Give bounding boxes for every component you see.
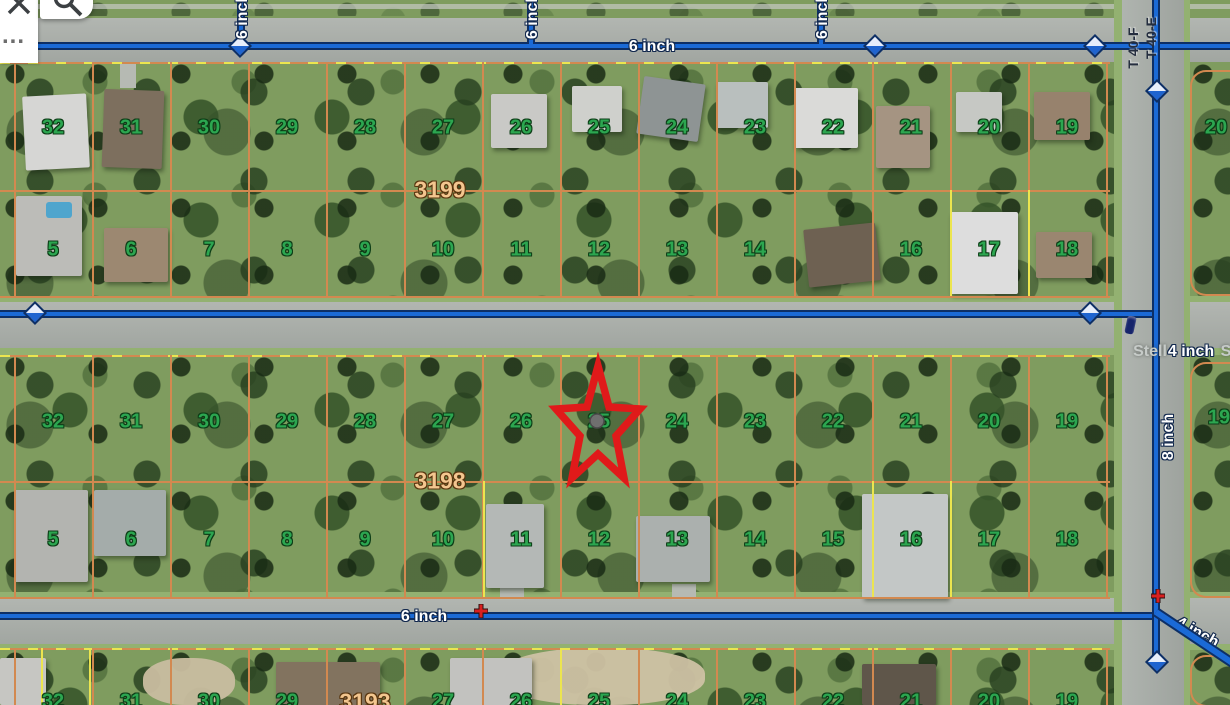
lot-number: 29 [276, 117, 298, 140]
parcel-line [170, 648, 172, 705]
lot-number: 32 [42, 691, 64, 705]
parcel-line [248, 648, 250, 705]
lot-number: 7 [203, 239, 214, 262]
toolbar-fragment: ... [0, 0, 38, 63]
grass-verge [1114, 0, 1122, 705]
lot-number: 8 [281, 239, 292, 262]
lot-number: 27 [432, 691, 454, 705]
parcel-outline [1190, 362, 1230, 598]
lot-number: 24 [666, 691, 688, 705]
parcel-line [794, 648, 796, 705]
parcel-line [950, 648, 952, 705]
lot-number: 11 [510, 239, 531, 262]
parcel-line [0, 62, 1110, 64]
lot-number: 19 [1056, 117, 1078, 140]
pipe-size-label: 6 inch [401, 608, 447, 626]
swimming-pool [46, 202, 72, 218]
parcel-line [872, 481, 874, 597]
road-top [0, 18, 1230, 62]
lot-number: 17 [978, 239, 1000, 262]
parcel-line [326, 62, 328, 296]
pipe-size-label: 6 inch [234, 0, 252, 39]
lot-number: 18 [1056, 239, 1078, 262]
lot-number: 30 [198, 691, 220, 705]
lot-number: 16 [900, 529, 922, 552]
parcel-line [794, 62, 796, 296]
lot-number: 21 [900, 411, 922, 434]
lot-number: 9 [359, 239, 370, 262]
lot-number: 13 [666, 239, 688, 262]
lot-number: 16 [900, 239, 922, 262]
lot-number: 30 [198, 117, 220, 140]
parcel-line [1028, 190, 1030, 296]
lot-number: 10 [432, 239, 454, 262]
lot-number: 29 [276, 691, 298, 705]
cleared-lot [143, 658, 235, 705]
pipe-size-label: 4 inch [1168, 343, 1214, 361]
parcel-line [326, 355, 328, 597]
plat-reference-label: T 40-E [1143, 17, 1159, 59]
lot-number: 22 [822, 411, 844, 434]
sidewalk [0, 4, 1230, 9]
parcel-line [170, 62, 172, 296]
parcel-line [950, 481, 952, 597]
lot-number: 24 [666, 117, 688, 140]
lot-number: 24 [666, 411, 688, 434]
lot-number: 23 [744, 691, 766, 705]
lot-number: 6 [125, 529, 136, 552]
grass-verge [0, 348, 1230, 355]
street-name-fragment: Stell [1133, 343, 1167, 361]
block-number: 3199 [414, 177, 465, 204]
parcel-line [92, 355, 94, 597]
parcel-outline [1190, 70, 1230, 296]
parcel-line [404, 62, 406, 296]
parcel-line [404, 355, 406, 597]
parcel-line [1106, 62, 1108, 296]
parcel-line [560, 62, 562, 296]
lot-number: 10 [432, 529, 454, 552]
pipe-size-label: 6 inch [814, 0, 832, 39]
lot-number: 26 [510, 691, 532, 705]
street-name-fragment: S [1221, 343, 1230, 361]
search-button[interactable] [40, 0, 93, 19]
parcel-line [0, 481, 1110, 483]
map-canvas[interactable]: 3231302928272625242322212019567891011121… [0, 0, 1230, 705]
parcel-line [872, 62, 874, 296]
lot-number: 15 [822, 529, 844, 552]
parcel-line [0, 296, 1110, 298]
parcel-line [92, 62, 94, 296]
water-main-top [0, 42, 1230, 50]
parcel-line [482, 62, 484, 296]
lot-number: 13 [666, 529, 688, 552]
lot-number: 26 [510, 411, 532, 434]
lot-number: 25 [588, 117, 610, 140]
parcel-line [404, 648, 406, 705]
parcel-line [560, 648, 562, 705]
hydrant-marker [474, 604, 488, 618]
plat-reference-label: T 40-F [1125, 27, 1141, 68]
lot-number: 25 [588, 691, 610, 705]
search-icon [40, 0, 93, 19]
lot-number: 29 [276, 411, 298, 434]
water-main-bottom [0, 612, 1158, 620]
parcel-line [1028, 648, 1030, 705]
hydrant-marker [1151, 589, 1165, 603]
parcel-line [14, 648, 16, 705]
house [803, 222, 881, 287]
lot-number: 32 [42, 411, 64, 434]
lot-number: 14 [744, 239, 766, 262]
lot-number: 23 [744, 117, 766, 140]
lot-number: 21 [900, 117, 922, 140]
parcel-line [248, 355, 250, 597]
parcel-line [326, 648, 328, 705]
lot-number: 20 [978, 691, 1000, 705]
parcel-line [482, 648, 484, 705]
parcel-line [716, 62, 718, 296]
hydrant-icon [1151, 589, 1165, 603]
lot-number: 28 [354, 117, 376, 140]
parcel-line [0, 648, 1110, 650]
parcel-line [170, 355, 172, 597]
parcel-line [14, 355, 16, 597]
lot-number: 20 [1205, 117, 1227, 140]
parcel-line [794, 355, 796, 597]
house [0, 658, 46, 705]
parcel-line [92, 648, 94, 705]
lot-number: 22 [822, 117, 844, 140]
parcel-line [14, 62, 16, 296]
lot-number: 20 [978, 411, 1000, 434]
lot-number: 25 [588, 411, 610, 434]
parcel-outline [1190, 655, 1230, 705]
parcel-line [716, 355, 718, 597]
parcel-line [638, 62, 640, 296]
overflow-ellipsis: ... [2, 22, 25, 50]
road-bottom [0, 598, 1230, 644]
lot-number: 26 [510, 117, 532, 140]
lot-number: 17 [978, 529, 1000, 552]
close-icon [2, 0, 36, 19]
lot-number: 27 [432, 411, 454, 434]
water-main-middle [0, 310, 1158, 318]
parcel-line [1106, 355, 1108, 597]
lot-number: 18 [1056, 529, 1078, 552]
driveway [120, 62, 136, 88]
pipe-size-label: 6 inch [629, 38, 675, 56]
parcel-line [483, 481, 485, 597]
parcel-line [872, 648, 874, 705]
block-number: 3193 [339, 689, 390, 705]
lot-number: 6 [125, 239, 136, 262]
lot-number: 31 [120, 411, 142, 434]
lot-number: 27 [432, 117, 454, 140]
parcel-line [1106, 648, 1108, 705]
lot-number: 21 [900, 691, 922, 705]
parcel-line [89, 648, 91, 705]
parcel-line [248, 62, 250, 296]
lot-number: 22 [822, 691, 844, 705]
pipe-size-label: 8 inch [1160, 414, 1178, 460]
lot-number: 20 [978, 117, 1000, 140]
lot-number: 32 [42, 117, 64, 140]
parcel-line [0, 190, 1110, 192]
lot-number: 7 [203, 529, 214, 552]
lot-number: 11 [510, 529, 531, 552]
lot-number: 9 [359, 529, 370, 552]
lot-number: 31 [120, 691, 142, 705]
block-number: 3198 [414, 468, 465, 495]
lot-number: 5 [47, 529, 58, 552]
hydrant-icon [474, 604, 488, 618]
lot-number: 31 [120, 117, 142, 140]
parcel-line [0, 355, 1110, 357]
parcel-line [638, 648, 640, 705]
road-middle [0, 302, 1230, 348]
lot-number: 19 [1056, 691, 1078, 705]
lot-number: 5 [47, 239, 58, 262]
lot-number: 30 [198, 411, 220, 434]
lot-number: 19 [1056, 411, 1078, 434]
lot-number: 14 [744, 529, 766, 552]
lot-number: 23 [744, 411, 766, 434]
parcel-line [560, 355, 562, 597]
lot-number: 12 [588, 529, 610, 552]
close-button[interactable] [2, 0, 36, 19]
pipe-size-label: 6 inch [524, 0, 542, 39]
lot-number: 19 [1208, 407, 1230, 430]
parcel-line [638, 355, 640, 597]
parcel-line [0, 597, 1110, 599]
parcel-line [716, 648, 718, 705]
lot-number: 28 [354, 411, 376, 434]
lot-number: 12 [588, 239, 610, 262]
parcel-line [950, 190, 952, 296]
parcel-line [1028, 355, 1030, 597]
lot-number: 8 [281, 529, 292, 552]
